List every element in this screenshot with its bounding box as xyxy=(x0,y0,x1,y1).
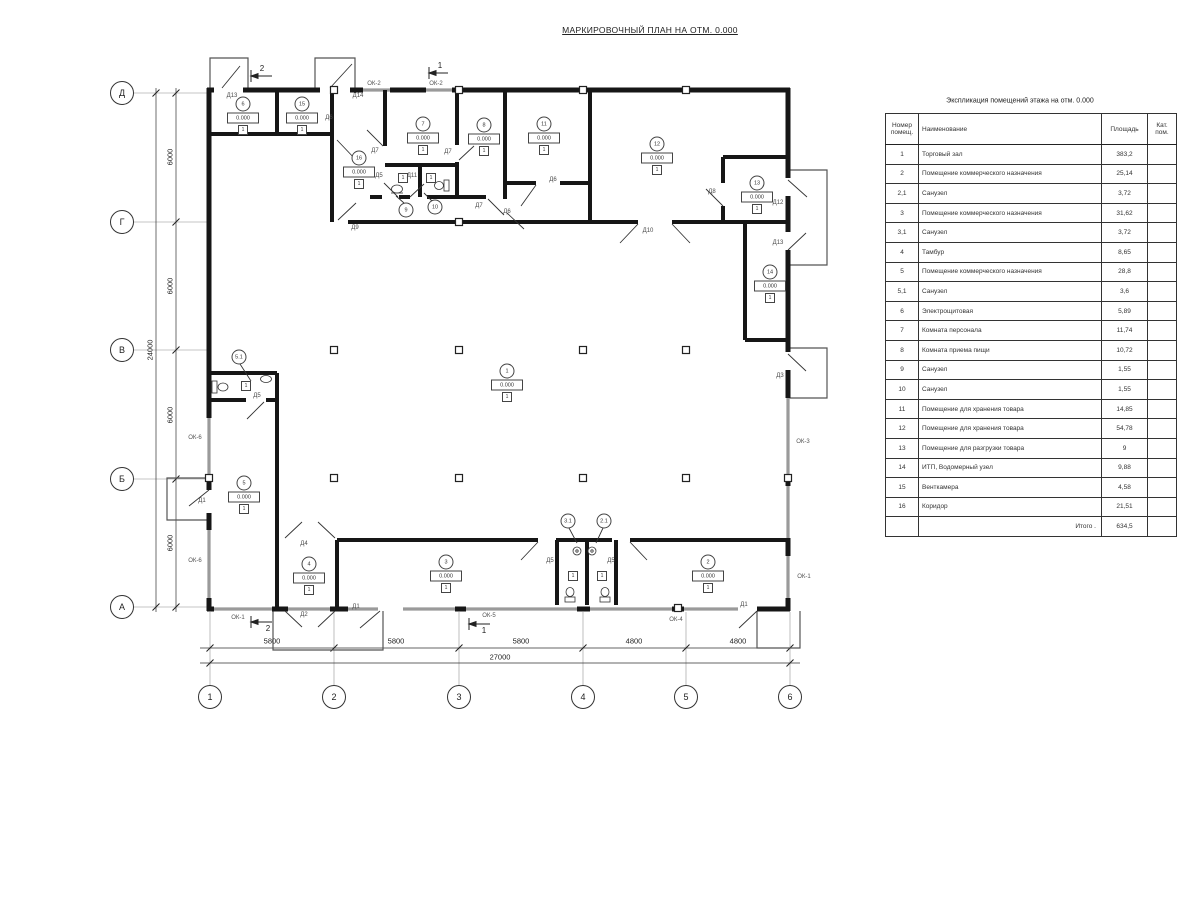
door-label: Д5 xyxy=(607,558,614,564)
room-area-cell: 14,85 xyxy=(1102,399,1148,419)
room-number-marker: 5 xyxy=(237,476,252,491)
room-name-cell: Электрощитовая xyxy=(919,301,1102,321)
room-name-cell: Помещение коммерческого назначения xyxy=(919,262,1102,282)
schedule-row: 5,1Санузел3,6 xyxy=(886,282,1177,302)
door-label: Д7 xyxy=(444,149,451,155)
room-name-cell: Помещение для хранения товара xyxy=(919,399,1102,419)
section-mark-label: 2 xyxy=(260,65,264,73)
window-label: ОК-1 xyxy=(231,615,245,621)
room-name-cell: Санузел xyxy=(919,184,1102,204)
elevation-mark: 0.000 xyxy=(741,192,773,203)
floor-type-mark: 1 xyxy=(426,173,436,183)
window-label: ОК-3 xyxy=(796,439,810,445)
total-empty xyxy=(1148,517,1177,537)
schedule-total-row: Итого .634,5 xyxy=(886,517,1177,537)
room-number-marker: 2 xyxy=(701,555,716,570)
room-number-cell: 13 xyxy=(886,438,919,458)
floor-type-mark: 1 xyxy=(297,125,307,135)
elevation-mark: 0.000 xyxy=(228,492,260,503)
window-label: ОК-6 xyxy=(188,435,202,441)
axis-circle-col: 6 xyxy=(778,685,802,709)
floor-type-mark: 1 xyxy=(441,583,451,593)
schedule-col-cat: Кат. пом. xyxy=(1148,114,1177,145)
door-label: Д13 xyxy=(227,93,238,99)
room-area-cell: 28,8 xyxy=(1102,262,1148,282)
dim-label-left: 6000 xyxy=(166,407,174,424)
window-label: ОК-5 xyxy=(482,613,496,619)
room-cat-cell xyxy=(1148,478,1177,498)
door-label: Д6 xyxy=(503,209,510,215)
room-area-cell: 5,89 xyxy=(1102,301,1148,321)
door-label: Д5 xyxy=(546,558,553,564)
section-mark-label: 2 xyxy=(266,625,270,633)
sheet-title: МАРКИРОВОЧНЫЙ ПЛАН НА ОТМ. 0.000 xyxy=(562,25,738,35)
door-label: Д14 xyxy=(353,93,364,99)
room-name-cell: Санузел xyxy=(919,360,1102,380)
axis-circle-row: Б xyxy=(110,467,134,491)
room-number-cell: 7 xyxy=(886,321,919,341)
room-number-marker: 1 xyxy=(500,364,515,379)
schedule-row: 4Тамбур8,65 xyxy=(886,242,1177,262)
door-label: Д4 xyxy=(300,541,307,547)
interior-walls xyxy=(209,90,790,609)
door-label: Д5 xyxy=(253,393,260,399)
axis-circle-col: 3 xyxy=(447,685,471,709)
dim-label-left: 6000 xyxy=(166,149,174,166)
schedule-row: 7Комната персонала11,74 xyxy=(886,321,1177,341)
room-area-cell: 383,2 xyxy=(1102,145,1148,165)
elevation-mark: 0.000 xyxy=(430,571,462,582)
room-name-cell: Комната приема пищи xyxy=(919,340,1102,360)
room-name-cell: Помещение коммерческого назначения xyxy=(919,164,1102,184)
room-cat-cell xyxy=(1148,145,1177,165)
schedule-col-name: Наименование xyxy=(919,114,1102,145)
elevation-mark: 0.000 xyxy=(468,134,500,145)
room-name-cell: Помещение для хранения товара xyxy=(919,419,1102,439)
exterior-walls xyxy=(207,88,790,611)
window-label: ОК-6 xyxy=(188,558,202,564)
room-name-cell: Помещение для разгрузки товара xyxy=(919,438,1102,458)
room-cat-cell xyxy=(1148,223,1177,243)
door-swings xyxy=(189,64,807,628)
floor-type-mark: 1 xyxy=(304,585,314,595)
room-number-marker: 12 xyxy=(650,137,665,152)
room-number-cell: 3,1 xyxy=(886,223,919,243)
schedule-row: 2,1Санузел3,72 xyxy=(886,184,1177,204)
axis-circle-row: В xyxy=(110,338,134,362)
schedule-row: 3,1Санузел3,72 xyxy=(886,223,1177,243)
room-cat-cell xyxy=(1148,497,1177,517)
schedule-row: 16Коридор21,51 xyxy=(886,497,1177,517)
room-cat-cell xyxy=(1148,164,1177,184)
dim-label-bottom: 5800 xyxy=(513,637,530,645)
room-cat-cell xyxy=(1148,458,1177,478)
room-area-cell: 54,78 xyxy=(1102,419,1148,439)
room-area-cell: 21,51 xyxy=(1102,497,1148,517)
room-number-cell: 4 xyxy=(886,242,919,262)
window-label: ОК-4 xyxy=(669,617,683,623)
room-number-marker: 14 xyxy=(763,265,778,280)
schedule-row: 5Помещение коммерческого назначения28,8 xyxy=(886,262,1177,282)
schedule-col-area: Площадь xyxy=(1102,114,1148,145)
total-area: 634,5 xyxy=(1102,517,1148,537)
dim-label-left-total: 24000 xyxy=(146,340,154,361)
porch-outlines xyxy=(167,58,827,650)
room-area-cell: 31,62 xyxy=(1102,203,1148,223)
floor-type-mark: 1 xyxy=(479,146,489,156)
door-label: Д7 xyxy=(475,203,482,209)
floor-type-mark: 1 xyxy=(539,145,549,155)
room-number-cell: 15 xyxy=(886,478,919,498)
room-number-cell: 3 xyxy=(886,203,919,223)
schedule-title: Экспликация помещений этажа на отм. 0.00… xyxy=(946,98,1094,105)
floor-type-mark: 1 xyxy=(765,293,775,303)
schedule-row: 14ИТП, Водомерный узел9,88 xyxy=(886,458,1177,478)
schedule-row: 2Помещение коммерческого назначения25,14 xyxy=(886,164,1177,184)
room-area-cell: 3,72 xyxy=(1102,184,1148,204)
floor-type-mark: 1 xyxy=(568,571,578,581)
room-name-cell: Тамбур xyxy=(919,242,1102,262)
axis-circle-row: Д xyxy=(110,81,134,105)
section-mark-label: 1 xyxy=(482,627,486,635)
elevation-mark: 0.000 xyxy=(692,571,724,582)
room-cat-cell xyxy=(1148,184,1177,204)
door-label: Д12 xyxy=(773,200,784,206)
room-number-marker: 13 xyxy=(750,176,765,191)
dim-label-left: 6000 xyxy=(166,278,174,295)
room-cat-cell xyxy=(1148,321,1177,341)
dim-label-bottom: 5800 xyxy=(388,637,405,645)
door-label: Д1 xyxy=(740,602,747,608)
schedule-row: 1Торговый зал383,2 xyxy=(886,145,1177,165)
room-name-cell: Торговый зал xyxy=(919,145,1102,165)
room-area-cell: 3,72 xyxy=(1102,223,1148,243)
room-cat-cell xyxy=(1148,380,1177,400)
window-label: ОК-2 xyxy=(367,81,381,87)
room-number-cell: 11 xyxy=(886,399,919,419)
elevation-mark: 0.000 xyxy=(641,153,673,164)
door-label: Д11 xyxy=(407,173,417,179)
room-name-cell: Санузел xyxy=(919,282,1102,302)
door-label: Д1 xyxy=(198,498,205,504)
elevation-mark: 0.000 xyxy=(528,133,560,144)
total-label: Итого . xyxy=(919,517,1102,537)
room-number-cell: 16 xyxy=(886,497,919,517)
room-number-marker: 3.1 xyxy=(561,514,576,529)
room-area-cell: 25,14 xyxy=(1102,164,1148,184)
floor-type-mark: 1 xyxy=(238,125,248,135)
room-cat-cell xyxy=(1148,419,1177,439)
room-number-marker: 16 xyxy=(352,151,367,166)
room-number-cell: 5 xyxy=(886,262,919,282)
door-label: Д2 xyxy=(300,612,307,618)
door-label: Д6 xyxy=(325,115,332,121)
room-number-cell: 9 xyxy=(886,360,919,380)
floor-type-mark: 1 xyxy=(241,381,251,391)
elevation-mark: 0.000 xyxy=(754,281,786,292)
room-number-cell: 1 xyxy=(886,145,919,165)
room-cat-cell xyxy=(1148,340,1177,360)
axis-circle-col: 4 xyxy=(571,685,595,709)
floor-type-mark: 1 xyxy=(354,179,364,189)
elevation-mark: 0.000 xyxy=(407,133,439,144)
schedule-row: 9Санузел1,55 xyxy=(886,360,1177,380)
floor-type-mark: 1 xyxy=(752,204,762,214)
schedule-table: Номер помещ. Наименование Площадь Кат. п… xyxy=(885,113,1177,537)
dim-label-bottom: 4800 xyxy=(730,637,747,645)
room-area-cell: 9 xyxy=(1102,438,1148,458)
door-label: Д13 xyxy=(773,240,784,246)
room-area-cell: 4,58 xyxy=(1102,478,1148,498)
room-number-marker: 4 xyxy=(302,557,317,572)
schedule-header-row: Номер помещ. Наименование Площадь Кат. п… xyxy=(886,114,1177,145)
room-number-marker: 2.1 xyxy=(597,514,612,529)
door-label: Д3 xyxy=(776,373,783,379)
room-name-cell: Помещение коммерческого назначения xyxy=(919,203,1102,223)
door-label: Д1 xyxy=(352,604,359,610)
room-name-cell: Коридор xyxy=(919,497,1102,517)
elevation-mark: 0.000 xyxy=(293,573,325,584)
room-area-cell: 10,72 xyxy=(1102,340,1148,360)
schedule-row: 6Электрощитовая5,89 xyxy=(886,301,1177,321)
room-cat-cell xyxy=(1148,399,1177,419)
window-label: ОК-1 xyxy=(797,574,811,580)
room-number-marker: 15 xyxy=(295,97,310,112)
room-cat-cell xyxy=(1148,282,1177,302)
room-number-cell: 5,1 xyxy=(886,282,919,302)
door-label: Д10 xyxy=(643,228,654,234)
door-label: Д9 xyxy=(351,225,358,231)
room-area-cell: 11,74 xyxy=(1102,321,1148,341)
schedule-row: 10Санузел1,55 xyxy=(886,380,1177,400)
room-number-marker: 7 xyxy=(416,117,431,132)
dim-label-bottom-total: 27000 xyxy=(490,653,511,661)
axis-circle-row: Г xyxy=(110,210,134,234)
dim-label-left: 6000 xyxy=(166,535,174,552)
room-area-cell: 1,55 xyxy=(1102,360,1148,380)
floor-type-mark: 1 xyxy=(597,571,607,581)
elevation-mark: 0.000 xyxy=(343,167,375,178)
room-name-cell: ИТП, Водомерный узел xyxy=(919,458,1102,478)
floor-type-mark: 1 xyxy=(652,165,662,175)
axis-circle-col: 1 xyxy=(198,685,222,709)
door-label: Д8 xyxy=(708,189,715,195)
room-name-cell: Комната персонала xyxy=(919,321,1102,341)
schedule-row: 15Венткамера4,58 xyxy=(886,478,1177,498)
room-area-cell: 9,88 xyxy=(1102,458,1148,478)
room-number-marker: 11 xyxy=(537,117,552,132)
dim-label-bottom: 4800 xyxy=(626,637,643,645)
room-cat-cell xyxy=(1148,360,1177,380)
room-name-cell: Венткамера xyxy=(919,478,1102,498)
section-mark-label: 1 xyxy=(438,62,442,70)
room-cat-cell xyxy=(1148,438,1177,458)
room-number-cell: 2,1 xyxy=(886,184,919,204)
room-name-cell: Санузел xyxy=(919,223,1102,243)
room-cat-cell xyxy=(1148,262,1177,282)
room-cat-cell xyxy=(1148,242,1177,262)
room-number-cell: 8 xyxy=(886,340,919,360)
axis-circle-row: А xyxy=(110,595,134,619)
schedule-row: 13Помещение для разгрузки товара9 xyxy=(886,438,1177,458)
elevation-mark: 0.000 xyxy=(227,113,259,124)
grid-lines xyxy=(134,93,790,686)
schedule-col-number: Номер помещ. xyxy=(886,114,919,145)
floor-type-mark: 1 xyxy=(418,145,428,155)
total-empty xyxy=(886,517,919,537)
room-number-marker: 9 xyxy=(399,203,414,218)
room-area-cell: 1,55 xyxy=(1102,380,1148,400)
dim-label-bottom: 5800 xyxy=(264,637,281,645)
room-number-cell: 12 xyxy=(886,419,919,439)
room-number-cell: 14 xyxy=(886,458,919,478)
floor-type-mark: 1 xyxy=(703,583,713,593)
axis-circle-col: 2 xyxy=(322,685,346,709)
room-number-cell: 2 xyxy=(886,164,919,184)
structural-columns xyxy=(206,87,792,612)
room-number-cell: 6 xyxy=(886,301,919,321)
elevation-mark: 0.000 xyxy=(286,113,318,124)
room-number-marker: 6 xyxy=(236,97,251,112)
elevation-mark: 0.000 xyxy=(491,380,523,391)
room-area-cell: 3,6 xyxy=(1102,282,1148,302)
room-area-cell: 8,65 xyxy=(1102,242,1148,262)
window-segments xyxy=(209,90,788,609)
room-number-marker: 10 xyxy=(428,200,443,215)
door-label: Д7 xyxy=(371,148,378,154)
door-label: Д5 xyxy=(375,173,382,179)
window-label: ОК-2 xyxy=(429,81,443,87)
floor-type-mark: 1 xyxy=(239,504,249,514)
drawing-sheet: МАРКИРОВОЧНЫЙ ПЛАН НА ОТМ. 0.000 Эксплик… xyxy=(0,0,1200,900)
floor-type-mark: 1 xyxy=(502,392,512,402)
room-number-cell: 10 xyxy=(886,380,919,400)
schedule-row: 12Помещение для хранения товара54,78 xyxy=(886,419,1177,439)
room-number-marker: 8 xyxy=(477,118,492,133)
room-number-marker: 3 xyxy=(439,555,454,570)
schedule-row: 3Помещение коммерческого назначения31,62 xyxy=(886,203,1177,223)
axis-circle-col: 5 xyxy=(674,685,698,709)
room-cat-cell xyxy=(1148,301,1177,321)
schedule-row: 11Помещение для хранения товара14,85 xyxy=(886,399,1177,419)
room-number-marker: 5.1 xyxy=(232,350,247,365)
room-name-cell: Санузел xyxy=(919,380,1102,400)
room-cat-cell xyxy=(1148,203,1177,223)
door-label: Д6 xyxy=(549,177,556,183)
schedule-row: 8Комната приема пищи10,72 xyxy=(886,340,1177,360)
